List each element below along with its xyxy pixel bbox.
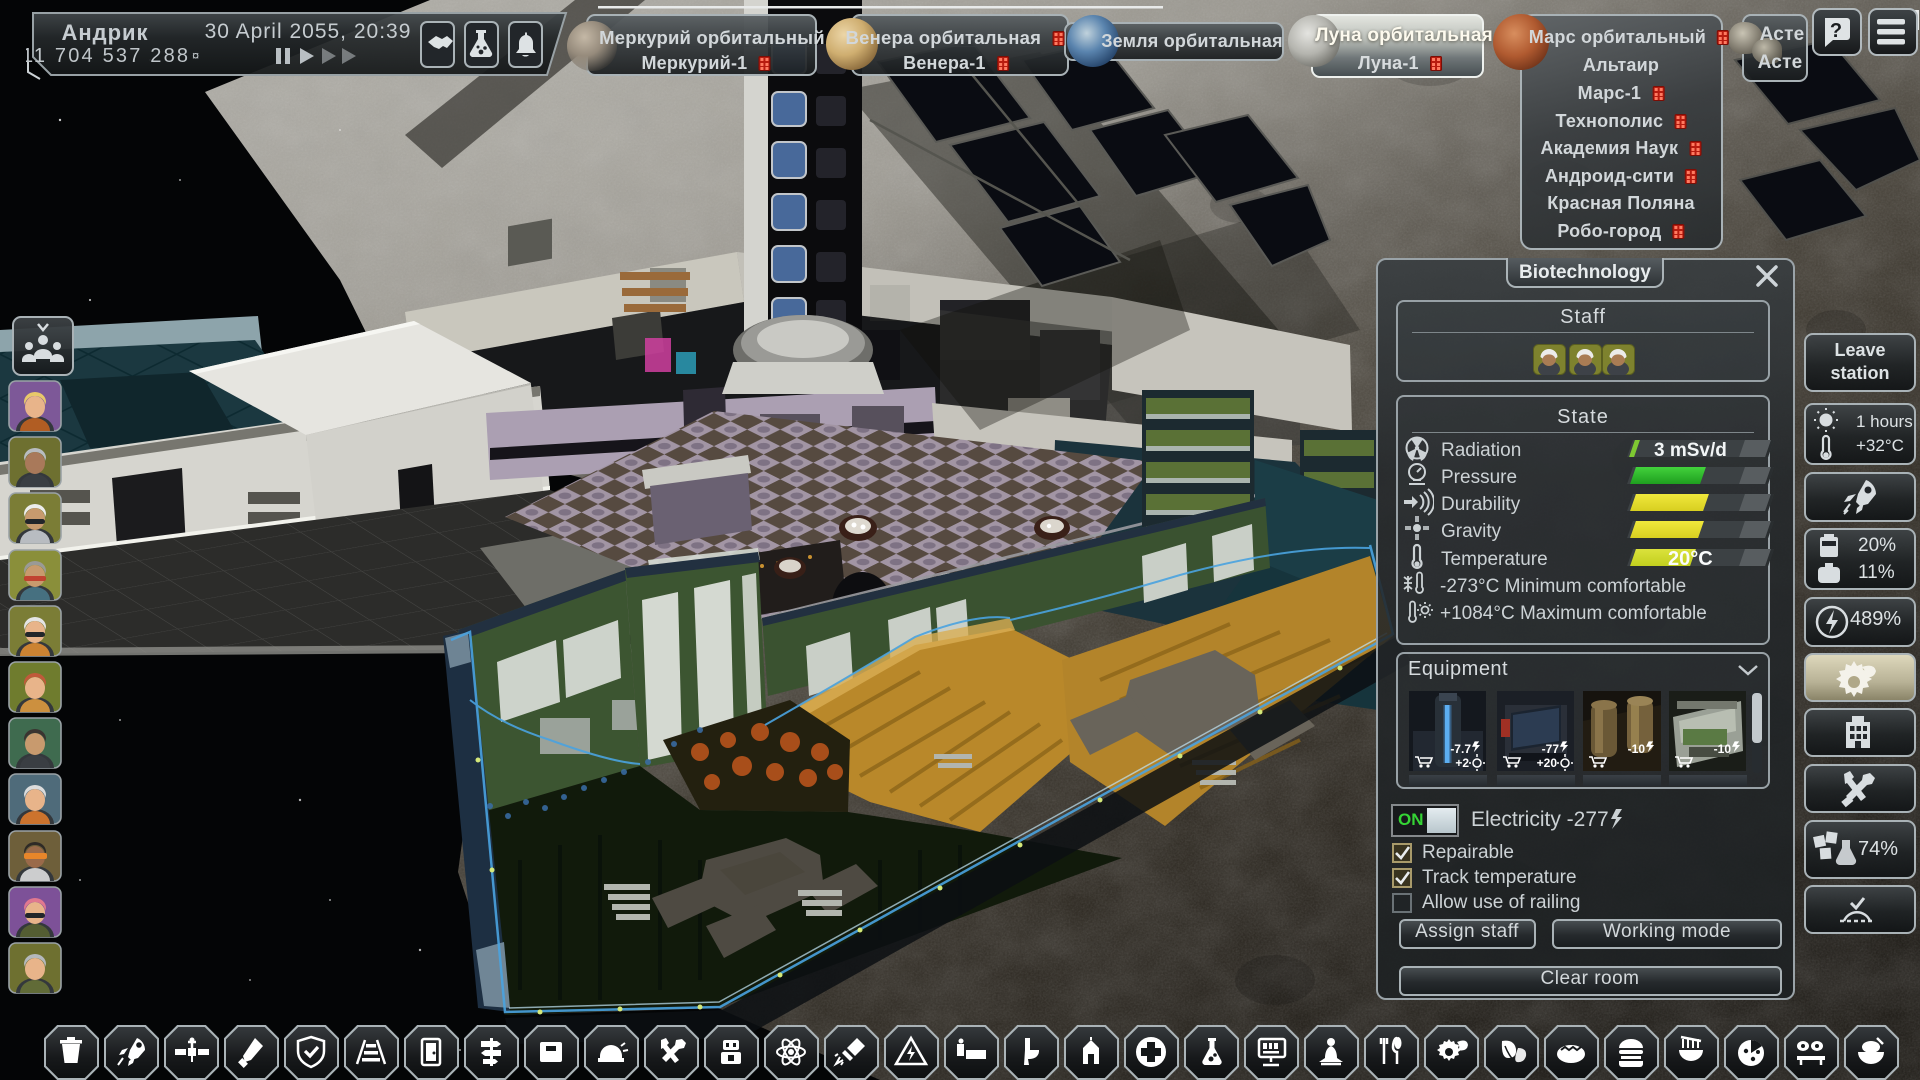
svg-text:30 April 2055, 20:39: 30 April 2055, 20:39 (205, 20, 412, 43)
svg-text:+2: +2 (1455, 756, 1469, 770)
svg-text:+20: +20 (1537, 756, 1558, 770)
svg-text:-10: -10 (1714, 742, 1732, 756)
svg-text:-77: -77 (1542, 742, 1560, 756)
svg-text:11 704 537 288: 11 704 537 288 (26, 45, 190, 67)
svg-text:Андрик: Андрик (61, 20, 148, 45)
svg-text:-10: -10 (1628, 742, 1646, 756)
svg-text:?: ? (1830, 20, 1842, 42)
svg-text:¤: ¤ (192, 48, 199, 63)
svg-text:-7.7: -7.7 (1450, 742, 1471, 756)
